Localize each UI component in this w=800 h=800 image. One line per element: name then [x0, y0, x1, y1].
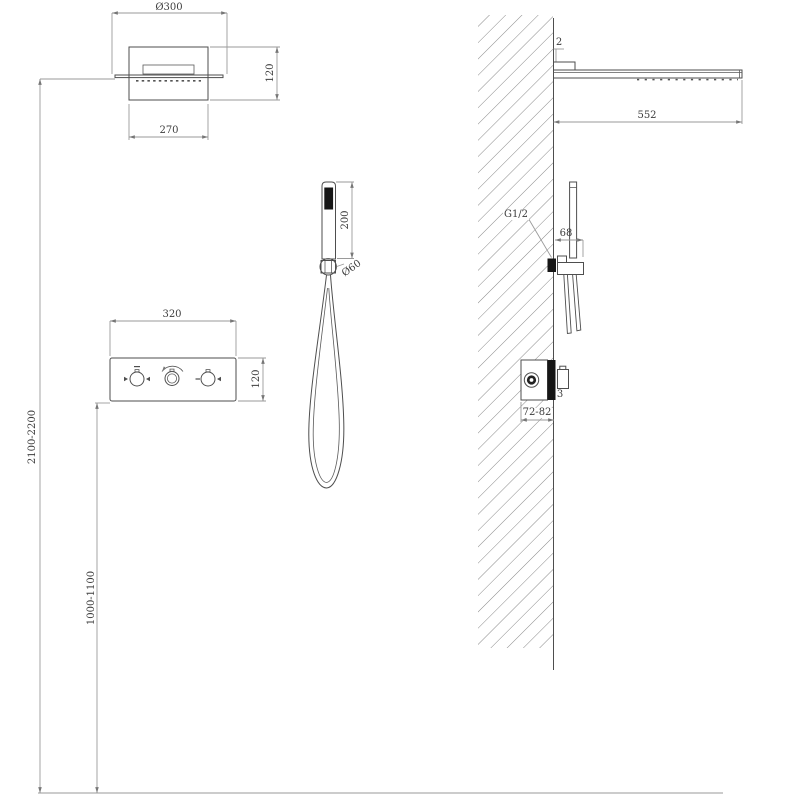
rain-head-front-view — [115, 47, 223, 100]
dim-panel-width: 320 — [162, 310, 181, 320]
dim-panel-install-height: 1000-1100 — [87, 571, 97, 625]
knob-left — [124, 366, 150, 386]
dim-bracket-offset: 68 — [560, 229, 573, 239]
dim-head-side-length: 552 — [637, 111, 656, 121]
control-panel-front-view — [110, 358, 236, 401]
wall-hatch — [478, 15, 554, 670]
drawing-linework — [0, 0, 800, 800]
dim-head-install-height: 2100-2200 — [28, 410, 38, 464]
dim-valve-depth: 72-82 — [522, 408, 553, 418]
knob-middle — [162, 366, 183, 385]
knob-right — [196, 370, 222, 386]
dim-head-height: 120 — [266, 63, 276, 82]
dim-head-diameter: Ø300 — [155, 3, 182, 13]
dim-valve-trim: 3 — [557, 390, 563, 400]
label-wall-thread: G1/2 — [503, 210, 529, 220]
dim-head-width: 270 — [159, 126, 178, 136]
hand-shower-front-view — [309, 182, 344, 488]
dim-panel-height: 120 — [252, 369, 262, 388]
dim-hand-shower-length: 200 — [341, 210, 351, 229]
technical-drawing-canvas: Ø300 120 270 320 120 200 Ø60 2100-2200 1… — [0, 0, 800, 800]
control-panel-dimensions — [110, 321, 266, 401]
rain-head-front-dimensions — [112, 13, 280, 140]
dim-plate-thickness: 2 — [556, 38, 562, 48]
rain-head-side-view — [554, 62, 743, 80]
install-height-dimensions — [38, 79, 723, 793]
